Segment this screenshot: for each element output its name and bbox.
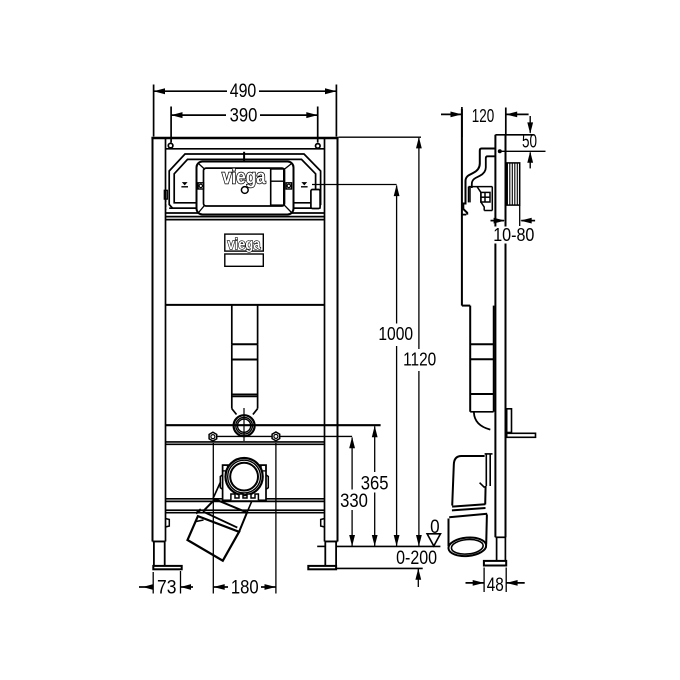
svg-text:330: 330: [340, 490, 368, 512]
svg-text:120: 120: [472, 106, 494, 126]
svg-text:180: 180: [231, 577, 259, 599]
svg-text:viega: viega: [222, 167, 266, 189]
svg-text:1120: 1120: [403, 350, 436, 370]
svg-text:390: 390: [230, 104, 258, 126]
svg-text:10-80: 10-80: [493, 225, 534, 245]
svg-text:1000: 1000: [378, 324, 413, 344]
svg-text:490: 490: [230, 80, 257, 102]
svg-text:viega: viega: [228, 237, 262, 253]
svg-text:0-200: 0-200: [396, 547, 437, 569]
svg-text:50: 50: [522, 130, 537, 152]
svg-text:48: 48: [487, 574, 504, 596]
svg-text:73: 73: [157, 577, 177, 599]
